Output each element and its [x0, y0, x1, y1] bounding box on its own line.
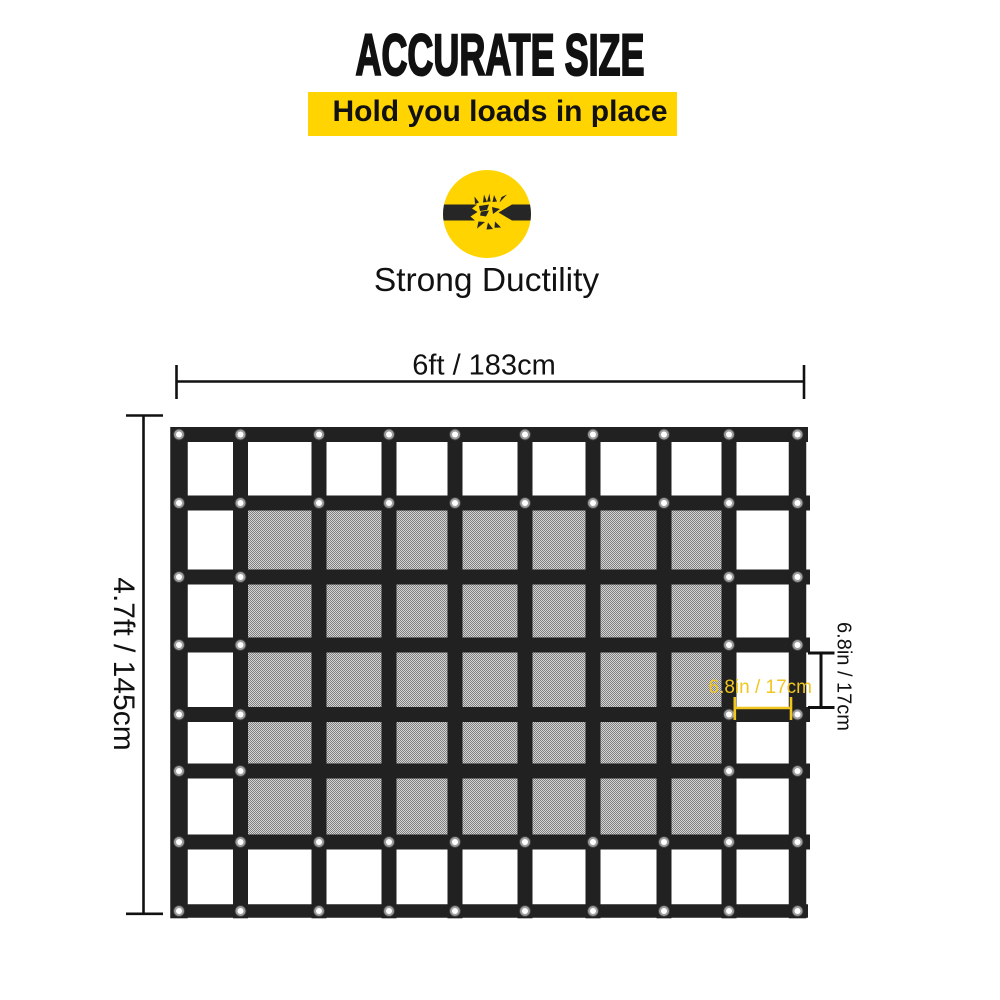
svg-text:6.8in / 17cm: 6.8in / 17cm: [833, 622, 855, 731]
svg-text:6.8in / 17cm: 6.8in / 17cm: [709, 677, 813, 698]
svg-text:4.7ft / 145cm: 4.7ft / 145cm: [107, 577, 140, 750]
svg-text:6ft / 183cm: 6ft / 183cm: [412, 350, 555, 382]
